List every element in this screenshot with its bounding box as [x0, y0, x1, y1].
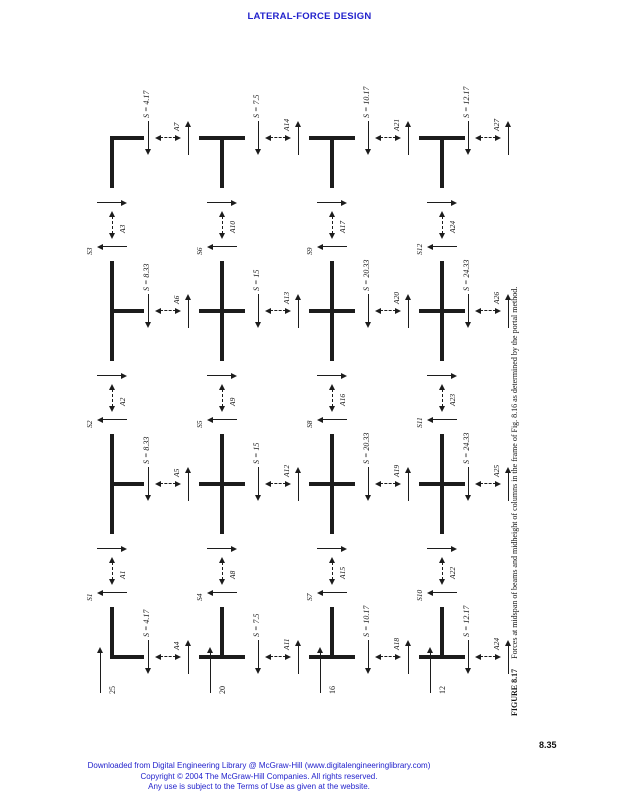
column-shear-arrow-lower-head-icon: [505, 294, 511, 300]
column-shear-arrow-lower-head-icon: [185, 640, 191, 646]
column-axial-arrow-head-down-icon: [495, 481, 501, 487]
beam-shear-arrow-right: [317, 375, 342, 376]
column-shear-arrow-upper-head-icon: [465, 668, 471, 674]
beam-axial-label: A22: [448, 567, 457, 579]
column-axial-arrow-head-down-icon: [285, 308, 291, 314]
column-bar: [110, 309, 144, 313]
column-shear-arrow-lower: [408, 299, 409, 328]
column-axial-arrow-head-down-icon: [495, 654, 501, 660]
column-shear-label: S = 20.33: [362, 260, 371, 291]
column-bar: [110, 655, 144, 659]
beam-shear-arrow-left-head-icon: [427, 590, 433, 596]
beam-shear-arrow-right-head-icon: [341, 546, 347, 552]
column-bar: [199, 655, 245, 659]
column-shear-arrow-upper: [258, 640, 259, 669]
column-axial-label: A27: [492, 119, 501, 131]
beam-shear-arrow-left-head-icon: [207, 590, 213, 596]
column-shear-arrow-upper: [148, 640, 149, 669]
column-axial-arrow-head-down-icon: [285, 135, 291, 141]
beam-axial-arrow: [442, 389, 443, 407]
column-axial-arrow-head-up-icon: [375, 481, 381, 487]
beam-shear-arrow-right: [317, 202, 342, 203]
column-axial-label: A12: [282, 465, 291, 477]
column-axial-arrow: [270, 310, 286, 311]
beam-axial-label: A15: [338, 567, 347, 579]
story-load-label: 16: [328, 686, 337, 694]
beam-axial-arrow-head-left-icon: [219, 406, 225, 412]
beam-axial-arrow-head-left-icon: [329, 406, 335, 412]
beam-axial-arrow-head-left-icon: [109, 579, 115, 585]
column-shear-label: S = 12.17: [462, 606, 471, 637]
column-shear-arrow-upper-head-icon: [255, 495, 261, 501]
column-bar: [309, 655, 355, 659]
beam-shear-label: S11: [415, 417, 424, 428]
beam-axial-arrow-head-left-icon: [329, 233, 335, 239]
column-axial-arrow: [160, 656, 176, 657]
beam-axial-label: A24: [448, 221, 457, 233]
beam-shear-arrow-right-head-icon: [451, 373, 457, 379]
column-axial-arrow-head-up-icon: [375, 654, 381, 660]
beam-shear-arrow-right-head-icon: [231, 200, 237, 206]
column-shear-arrow-upper: [148, 467, 149, 496]
column-bar: [110, 136, 144, 140]
column-shear-arrow-upper-head-icon: [255, 149, 261, 155]
column-axial-arrow-head-up-icon: [155, 308, 161, 314]
beam-shear-arrow-right-head-icon: [341, 373, 347, 379]
beam-shear-arrow-left-head-icon: [207, 244, 213, 250]
column-axial-arrow-head-up-icon: [265, 308, 271, 314]
column-shear-arrow-lower: [188, 299, 189, 328]
column-axial-label: A25: [492, 465, 501, 477]
beam-axial-label: A1: [118, 571, 127, 579]
column-shear-label: S = 4.17: [142, 610, 151, 637]
column-axial-arrow-head-up-icon: [375, 135, 381, 141]
beam-shear-arrow-left: [322, 419, 347, 420]
column-axial-label: A24: [492, 638, 501, 650]
column-axial-arrow-head-up-icon: [475, 481, 481, 487]
footer-line-2: Copyright © 2004 The McGraw-Hill Compani…: [36, 772, 482, 783]
beam-shear-label: S12: [415, 244, 424, 255]
beam-shear-arrow-left-head-icon: [427, 417, 433, 423]
beam-axial-arrow: [222, 216, 223, 234]
column-axial-arrow: [480, 137, 496, 138]
column-shear-arrow-upper: [258, 467, 259, 496]
column-shear-arrow-upper-head-icon: [465, 322, 471, 328]
column-shear-label: S = 20.33: [362, 433, 371, 464]
column-axial-label: A18: [392, 638, 401, 650]
beam-shear-arrow-left-head-icon: [97, 244, 103, 250]
beam-bar: [110, 136, 114, 188]
story-load-arrow: [430, 652, 431, 693]
column-axial-arrow-head-down-icon: [395, 654, 401, 660]
beam-shear-arrow-right-head-icon: [451, 200, 457, 206]
column-shear-arrow-lower-head-icon: [505, 467, 511, 473]
beam-axial-arrow-head-right-icon: [439, 384, 445, 390]
beam-shear-arrow-right-head-icon: [231, 546, 237, 552]
beam-axial-label: A8: [228, 571, 237, 579]
column-axial-arrow-head-down-icon: [175, 308, 181, 314]
beam-shear-arrow-left-head-icon: [317, 590, 323, 596]
column-axial-arrow: [380, 483, 396, 484]
column-axial-arrow-head-up-icon: [375, 308, 381, 314]
beam-shear-label: S7: [305, 594, 314, 602]
column-shear-arrow-upper: [368, 121, 369, 150]
beam-shear-arrow-left: [212, 419, 237, 420]
column-bar: [419, 309, 465, 313]
column-shear-arrow-upper: [258, 294, 259, 323]
beam-bar: [220, 607, 224, 659]
beam-axial-arrow-head-right-icon: [329, 211, 335, 217]
beam-axial-arrow: [222, 389, 223, 407]
beam-axial-label: A23: [448, 394, 457, 406]
column-shear-arrow-lower-head-icon: [295, 294, 301, 300]
beam-axial-arrow-head-left-icon: [219, 233, 225, 239]
column-bar: [309, 309, 355, 313]
beam-axial-arrow: [332, 562, 333, 580]
column-axial-arrow-head-down-icon: [175, 481, 181, 487]
beam-axial-arrow-head-right-icon: [439, 211, 445, 217]
column-axial-label: A11: [282, 638, 291, 650]
column-shear-arrow-lower-head-icon: [185, 294, 191, 300]
column-axial-arrow-head-up-icon: [265, 481, 271, 487]
column-shear-label: S = 15: [252, 270, 261, 291]
column-shear-arrow-upper-head-icon: [145, 668, 151, 674]
column-bar: [419, 482, 465, 486]
beam-shear-arrow-right-head-icon: [451, 546, 457, 552]
column-axial-arrow: [270, 137, 286, 138]
beam-shear-arrow-left: [432, 246, 457, 247]
column-shear-label: S = 24.33: [462, 433, 471, 464]
column-shear-arrow-upper-head-icon: [365, 495, 371, 501]
story-load-arrow-head-icon: [207, 647, 213, 653]
column-shear-arrow-upper-head-icon: [465, 495, 471, 501]
beam-axial-arrow: [332, 389, 333, 407]
column-axial-label: A14: [282, 119, 291, 131]
running-head: LATERAL-FORCE DESIGN: [0, 11, 619, 22]
column-bar: [199, 482, 245, 486]
column-shear-arrow-lower-head-icon: [405, 121, 411, 127]
column-bar: [419, 136, 465, 140]
column-axial-label: A6: [172, 296, 181, 304]
story-load-label: 25: [108, 686, 117, 694]
column-axial-arrow-head-down-icon: [495, 135, 501, 141]
beam-shear-arrow-left: [432, 592, 457, 593]
column-shear-arrow-upper-head-icon: [255, 668, 261, 674]
beam-axial-arrow-head-left-icon: [439, 579, 445, 585]
figure-caption-label: FIGURE 8.17: [510, 659, 519, 716]
column-axial-arrow-head-up-icon: [265, 654, 271, 660]
column-bar: [309, 136, 355, 140]
footer-line-3: Any use is subject to the Terms of Use a…: [36, 782, 482, 793]
beam-shear-label: S4: [195, 594, 204, 602]
column-shear-arrow-lower-head-icon: [185, 121, 191, 127]
column-axial-label: A20: [392, 292, 401, 304]
beam-shear-label: S10: [415, 590, 424, 601]
beam-axial-label: A2: [118, 398, 127, 406]
column-axial-arrow: [380, 656, 396, 657]
column-axial-arrow-head-up-icon: [155, 481, 161, 487]
beam-axial-arrow: [112, 216, 113, 234]
column-shear-arrow-lower: [298, 472, 299, 501]
column-shear-arrow-upper-head-icon: [365, 322, 371, 328]
column-axial-label: A21: [392, 119, 401, 131]
figure-8-17-rotated: FIGURE 8.17Forces at midspan of beams an…: [82, 76, 537, 736]
story-load-arrow-head-icon: [427, 647, 433, 653]
story-load-arrow: [210, 652, 211, 693]
column-shear-label: S = 10.17: [362, 87, 371, 118]
column-shear-arrow-lower: [408, 645, 409, 674]
column-shear-arrow-lower-head-icon: [405, 640, 411, 646]
column-shear-arrow-lower: [408, 126, 409, 155]
beam-bar: [440, 136, 444, 188]
column-shear-label: S = 15: [252, 443, 261, 464]
column-shear-label: S = 8.33: [142, 264, 151, 291]
column-shear-arrow-lower: [508, 472, 509, 501]
column-axial-arrow-head-up-icon: [475, 654, 481, 660]
beam-axial-label: A3: [118, 225, 127, 233]
column-shear-arrow-lower-head-icon: [295, 467, 301, 473]
column-axial-arrow-head-up-icon: [265, 135, 271, 141]
column-axial-arrow: [480, 310, 496, 311]
story-load-label: 20: [218, 686, 227, 694]
story-load-arrow: [320, 652, 321, 693]
beam-axial-label: A16: [338, 394, 347, 406]
column-axial-arrow: [270, 483, 286, 484]
column-axial-label: A4: [172, 642, 181, 650]
beam-axial-label: A9: [228, 398, 237, 406]
column-axial-arrow-head-up-icon: [475, 135, 481, 141]
column-shear-arrow-lower-head-icon: [505, 121, 511, 127]
column-axial-arrow-head-down-icon: [285, 654, 291, 660]
column-shear-arrow-upper: [468, 640, 469, 669]
beam-shear-arrow-right: [427, 375, 452, 376]
page-footer: Downloaded from Digital Engineering Libr…: [36, 761, 482, 793]
beam-shear-arrow-left: [102, 246, 127, 247]
column-axial-arrow-head-down-icon: [395, 135, 401, 141]
beam-axial-arrow: [112, 562, 113, 580]
column-shear-arrow-lower: [298, 645, 299, 674]
figure-canvas: FIGURE 8.17Forces at midspan of beams an…: [82, 76, 537, 736]
beam-axial-arrow-head-right-icon: [109, 557, 115, 563]
column-shear-label: S = 7.5: [252, 614, 261, 637]
column-axial-arrow-head-down-icon: [395, 308, 401, 314]
beam-axial-arrow-head-left-icon: [109, 406, 115, 412]
column-axial-arrow: [160, 137, 176, 138]
beam-shear-arrow-left: [212, 246, 237, 247]
column-shear-arrow-upper: [468, 121, 469, 150]
beam-shear-arrow-left: [212, 592, 237, 593]
beam-axial-arrow-head-left-icon: [439, 406, 445, 412]
column-shear-arrow-lower: [298, 299, 299, 328]
beam-shear-arrow-left-head-icon: [317, 417, 323, 423]
column-axial-arrow-head-down-icon: [285, 481, 291, 487]
beam-shear-arrow-right: [317, 548, 342, 549]
column-axial-arrow-head-up-icon: [155, 135, 161, 141]
column-shear-arrow-upper-head-icon: [145, 149, 151, 155]
column-shear-label: S = 24.33: [462, 260, 471, 291]
beam-axial-arrow-head-left-icon: [439, 233, 445, 239]
page-number: 8.35: [539, 740, 557, 750]
column-axial-arrow-head-up-icon: [475, 308, 481, 314]
beam-shear-arrow-right: [97, 548, 122, 549]
beam-shear-arrow-left: [322, 592, 347, 593]
column-shear-arrow-upper-head-icon: [255, 322, 261, 328]
beam-shear-label: S5: [195, 421, 204, 429]
beam-axial-arrow: [442, 216, 443, 234]
column-axial-arrow: [380, 137, 396, 138]
beam-shear-arrow-left: [102, 592, 127, 593]
column-shear-label: S = 10.17: [362, 606, 371, 637]
beam-shear-arrow-right: [207, 202, 232, 203]
column-shear-arrow-lower-head-icon: [185, 467, 191, 473]
beam-bar: [110, 607, 114, 659]
beam-shear-arrow-left-head-icon: [97, 417, 103, 423]
column-shear-arrow-upper-head-icon: [465, 149, 471, 155]
beam-axial-label: A10: [228, 221, 237, 233]
column-shear-arrow-upper: [468, 467, 469, 496]
beam-axial-label: A17: [338, 221, 347, 233]
beam-shear-arrow-left: [102, 419, 127, 420]
column-bar: [199, 309, 245, 313]
column-shear-arrow-upper: [258, 121, 259, 150]
beam-shear-arrow-left-head-icon: [97, 590, 103, 596]
beam-shear-arrow-right: [207, 548, 232, 549]
beam-shear-arrow-right-head-icon: [121, 546, 127, 552]
beam-axial-arrow-head-right-icon: [219, 211, 225, 217]
column-axial-arrow: [480, 656, 496, 657]
column-shear-arrow-lower: [508, 126, 509, 155]
column-axial-arrow: [160, 310, 176, 311]
column-axial-label: A19: [392, 465, 401, 477]
column-shear-arrow-lower: [508, 645, 509, 674]
column-bar: [110, 482, 144, 486]
book-page: LATERAL-FORCE DESIGN FIGURE 8.17Forces a…: [0, 0, 619, 800]
column-shear-arrow-lower: [188, 472, 189, 501]
column-axial-arrow-head-down-icon: [495, 308, 501, 314]
beam-shear-label: S2: [85, 421, 94, 429]
beam-axial-arrow-head-right-icon: [329, 384, 335, 390]
column-axial-arrow: [380, 310, 396, 311]
column-shear-arrow-upper: [368, 294, 369, 323]
column-shear-label: S = 4.17: [142, 91, 151, 118]
column-bar: [419, 655, 465, 659]
column-shear-arrow-lower-head-icon: [295, 640, 301, 646]
beam-axial-arrow-head-left-icon: [329, 579, 335, 585]
column-shear-arrow-upper: [468, 294, 469, 323]
beam-shear-label: S6: [195, 248, 204, 256]
story-load-arrow-head-icon: [317, 647, 323, 653]
column-shear-arrow-lower: [408, 472, 409, 501]
beam-axial-arrow: [442, 562, 443, 580]
column-bar: [309, 482, 355, 486]
figure-caption-text: Forces at midspan of beams and midheight…: [510, 287, 519, 659]
column-axial-arrow-head-down-icon: [175, 654, 181, 660]
column-shear-arrow-upper: [148, 294, 149, 323]
beam-axial-arrow-head-left-icon: [219, 579, 225, 585]
column-shear-arrow-upper: [148, 121, 149, 150]
column-shear-label: S = 7.5: [252, 95, 261, 118]
column-shear-arrow-upper: [368, 467, 369, 496]
beam-axial-arrow: [222, 562, 223, 580]
column-shear-arrow-lower-head-icon: [405, 294, 411, 300]
column-shear-arrow-lower: [508, 299, 509, 328]
column-axial-arrow: [480, 483, 496, 484]
beam-shear-label: S3: [85, 248, 94, 256]
beam-axial-arrow-head-right-icon: [109, 211, 115, 217]
beam-shear-arrow-right-head-icon: [121, 373, 127, 379]
beam-axial-arrow-head-right-icon: [439, 557, 445, 563]
beam-shear-arrow-right-head-icon: [341, 200, 347, 206]
column-shear-arrow-lower: [188, 126, 189, 155]
column-shear-arrow-upper-head-icon: [145, 322, 151, 328]
column-shear-label: S = 12.17: [462, 87, 471, 118]
column-axial-label: A5: [172, 469, 181, 477]
column-shear-arrow-upper: [368, 640, 369, 669]
beam-shear-arrow-left: [322, 246, 347, 247]
beam-axial-arrow-head-right-icon: [329, 557, 335, 563]
beam-bar: [440, 607, 444, 659]
column-axial-arrow: [160, 483, 176, 484]
story-load-label: 12: [438, 686, 447, 694]
column-axial-arrow-head-down-icon: [175, 135, 181, 141]
beam-bar: [330, 607, 334, 659]
beam-axial-arrow: [332, 216, 333, 234]
column-axial-label: A7: [172, 123, 181, 131]
column-shear-arrow-lower: [298, 126, 299, 155]
column-shear-arrow-lower-head-icon: [505, 640, 511, 646]
beam-shear-label: S1: [85, 594, 94, 602]
beam-axial-arrow: [112, 389, 113, 407]
column-axial-arrow: [270, 656, 286, 657]
beam-shear-arrow-right: [207, 375, 232, 376]
column-axial-label: A13: [282, 292, 291, 304]
beam-axial-arrow-head-right-icon: [109, 384, 115, 390]
column-shear-arrow-upper-head-icon: [365, 668, 371, 674]
beam-shear-arrow-left: [432, 419, 457, 420]
beam-shear-arrow-right: [427, 202, 452, 203]
beam-shear-arrow-right: [97, 375, 122, 376]
story-load-arrow-head-icon: [97, 647, 103, 653]
column-shear-arrow-lower: [188, 645, 189, 674]
beam-shear-arrow-left-head-icon: [207, 417, 213, 423]
column-shear-arrow-lower-head-icon: [295, 121, 301, 127]
beam-axial-arrow-head-left-icon: [109, 233, 115, 239]
beam-shear-arrow-left-head-icon: [317, 244, 323, 250]
beam-shear-arrow-right-head-icon: [121, 200, 127, 206]
column-shear-arrow-lower-head-icon: [405, 467, 411, 473]
beam-shear-arrow-right: [97, 202, 122, 203]
beam-shear-arrow-right-head-icon: [231, 373, 237, 379]
column-axial-arrow-head-down-icon: [395, 481, 401, 487]
beam-bar: [330, 136, 334, 188]
beam-axial-arrow-head-right-icon: [219, 384, 225, 390]
figure-caption: FIGURE 8.17Forces at midspan of beams an…: [510, 287, 519, 716]
column-bar: [199, 136, 245, 140]
beam-bar: [220, 136, 224, 188]
beam-shear-arrow-right: [427, 548, 452, 549]
column-shear-label: S = 8.33: [142, 437, 151, 464]
beam-shear-label: S9: [305, 248, 314, 256]
column-axial-label: A26: [492, 292, 501, 304]
column-shear-arrow-upper-head-icon: [145, 495, 151, 501]
column-shear-arrow-upper-head-icon: [365, 149, 371, 155]
column-axial-arrow-head-up-icon: [155, 654, 161, 660]
beam-axial-arrow-head-right-icon: [219, 557, 225, 563]
beam-shear-arrow-left-head-icon: [427, 244, 433, 250]
story-load-arrow: [100, 652, 101, 693]
beam-shear-label: S8: [305, 421, 314, 429]
footer-line-1: Downloaded from Digital Engineering Libr…: [36, 761, 482, 772]
